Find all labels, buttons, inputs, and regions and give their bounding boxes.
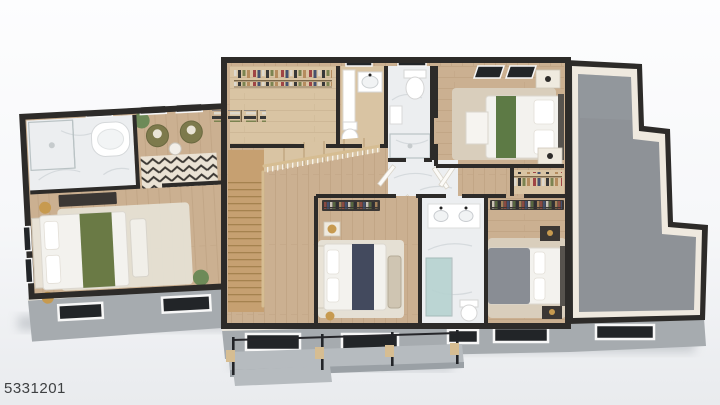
shower-drain [408,144,413,149]
lamp [547,153,553,159]
bed-blanket [79,212,115,288]
primary-bathroom [26,108,136,192]
toilet-bowl [406,77,424,99]
lamp [545,76,551,82]
floorplan-photo: 5331201 [0,0,720,405]
books [324,202,378,209]
bedroom-tr-window [474,66,504,78]
hanging-clothes [514,172,562,186]
hanging-clothes-side [210,110,266,122]
wing-window-right [162,295,211,312]
shower [426,258,452,316]
stair-treads [228,178,264,308]
bed-pillow [44,221,59,250]
sink [459,211,473,222]
bedroom-tr-window [506,66,536,78]
gold-lamp [326,312,335,321]
storage-floor-sheen [578,74,632,120]
wood-bracket [315,347,324,359]
lamp [547,230,553,236]
bed-pillow [327,250,339,274]
hanging-clothes-top [234,70,332,86]
sink [362,76,378,88]
bed-pillow [534,252,545,274]
hall-bathroom-b [388,59,432,160]
bedroom-tr-closet [512,170,564,194]
bed-duvet [488,248,530,304]
fascia-window-4 [494,328,548,342]
fascia-window-5 [596,325,654,339]
tufted-bench [388,256,401,308]
hall-bathroom-a [341,59,386,147]
bath-a-counter [343,70,355,128]
bed-pillow [534,100,554,124]
wood-bracket [450,343,459,355]
bedroom-bottom-middle [316,196,420,324]
faucet [440,207,443,210]
bedroom-top-right [436,66,564,166]
toilet-bowl [461,305,477,321]
storage-chest [466,112,488,144]
primary-suite-wing [17,102,245,342]
photo-id-label: 5331201 [4,380,66,398]
wing-side-window [23,227,31,251]
headboard [317,246,324,308]
sink [434,211,448,222]
faucet [369,74,372,77]
wing-side-window [25,258,33,282]
bed-runner [352,244,374,310]
gold-lamp [328,225,337,234]
bedroom-bottom-right [486,196,566,324]
wood-bracket [385,345,394,357]
fascia-window-3 [448,330,478,343]
sink [390,106,402,124]
bed-pillow [534,278,545,300]
wing-window-left [58,303,103,320]
side-table [169,143,182,156]
lamp [549,309,555,315]
bed-pillow [327,278,339,302]
fascia-window-1 [246,334,300,350]
floorplan-render [0,0,720,405]
bed-pillow [46,255,61,284]
bed-throw [496,96,516,158]
shared-bathroom [422,196,486,324]
bed-bench [130,218,149,277]
unfinished-storage [566,60,708,324]
faucet [465,207,468,210]
wood-bracket [226,350,235,362]
books [492,201,562,209]
